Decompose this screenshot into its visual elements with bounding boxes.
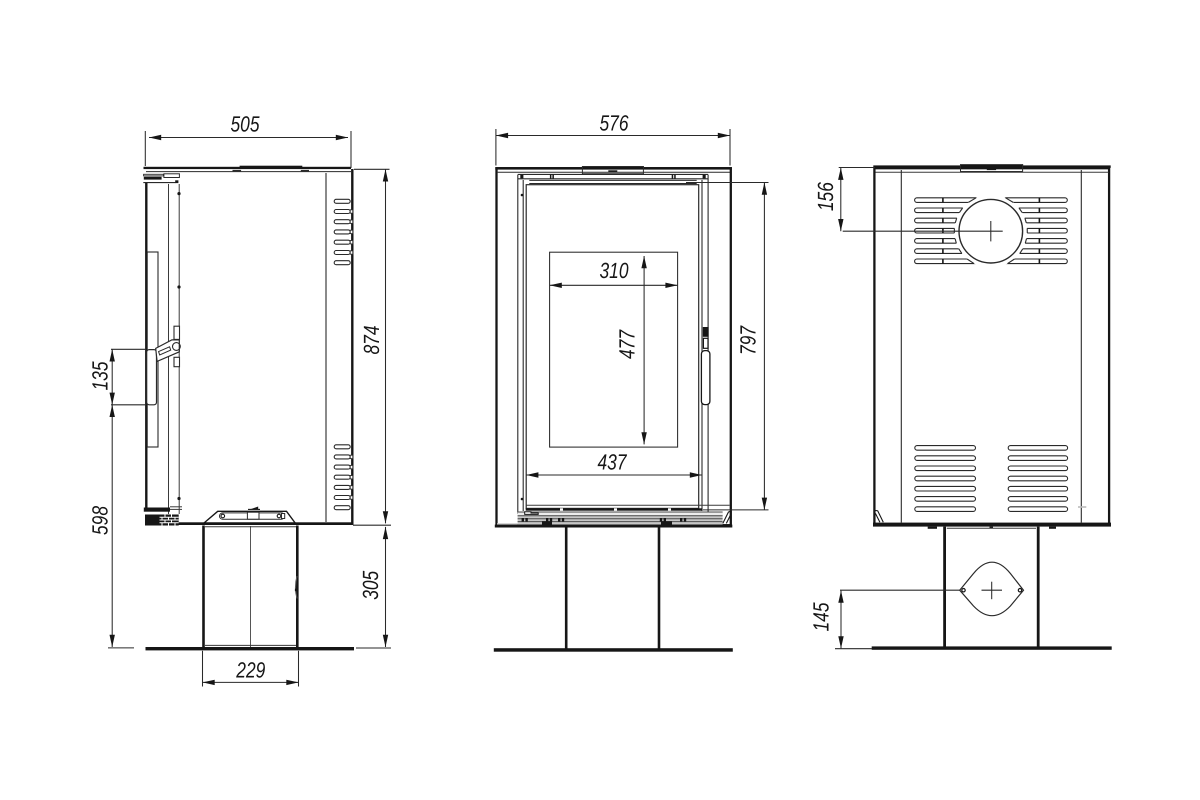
svg-text:305: 305 — [358, 570, 383, 600]
svg-text:576: 576 — [599, 110, 629, 135]
svg-text:229: 229 — [236, 658, 266, 683]
svg-text:505: 505 — [230, 111, 260, 136]
svg-text:477: 477 — [615, 329, 640, 359]
svg-text:598: 598 — [87, 505, 112, 535]
svg-text:437: 437 — [597, 450, 627, 475]
svg-text:310: 310 — [599, 258, 629, 283]
svg-text:135: 135 — [88, 361, 113, 391]
svg-text:156: 156 — [813, 182, 838, 212]
svg-text:874: 874 — [359, 325, 384, 354]
svg-text:797: 797 — [736, 325, 761, 355]
svg-text:145: 145 — [808, 602, 833, 632]
